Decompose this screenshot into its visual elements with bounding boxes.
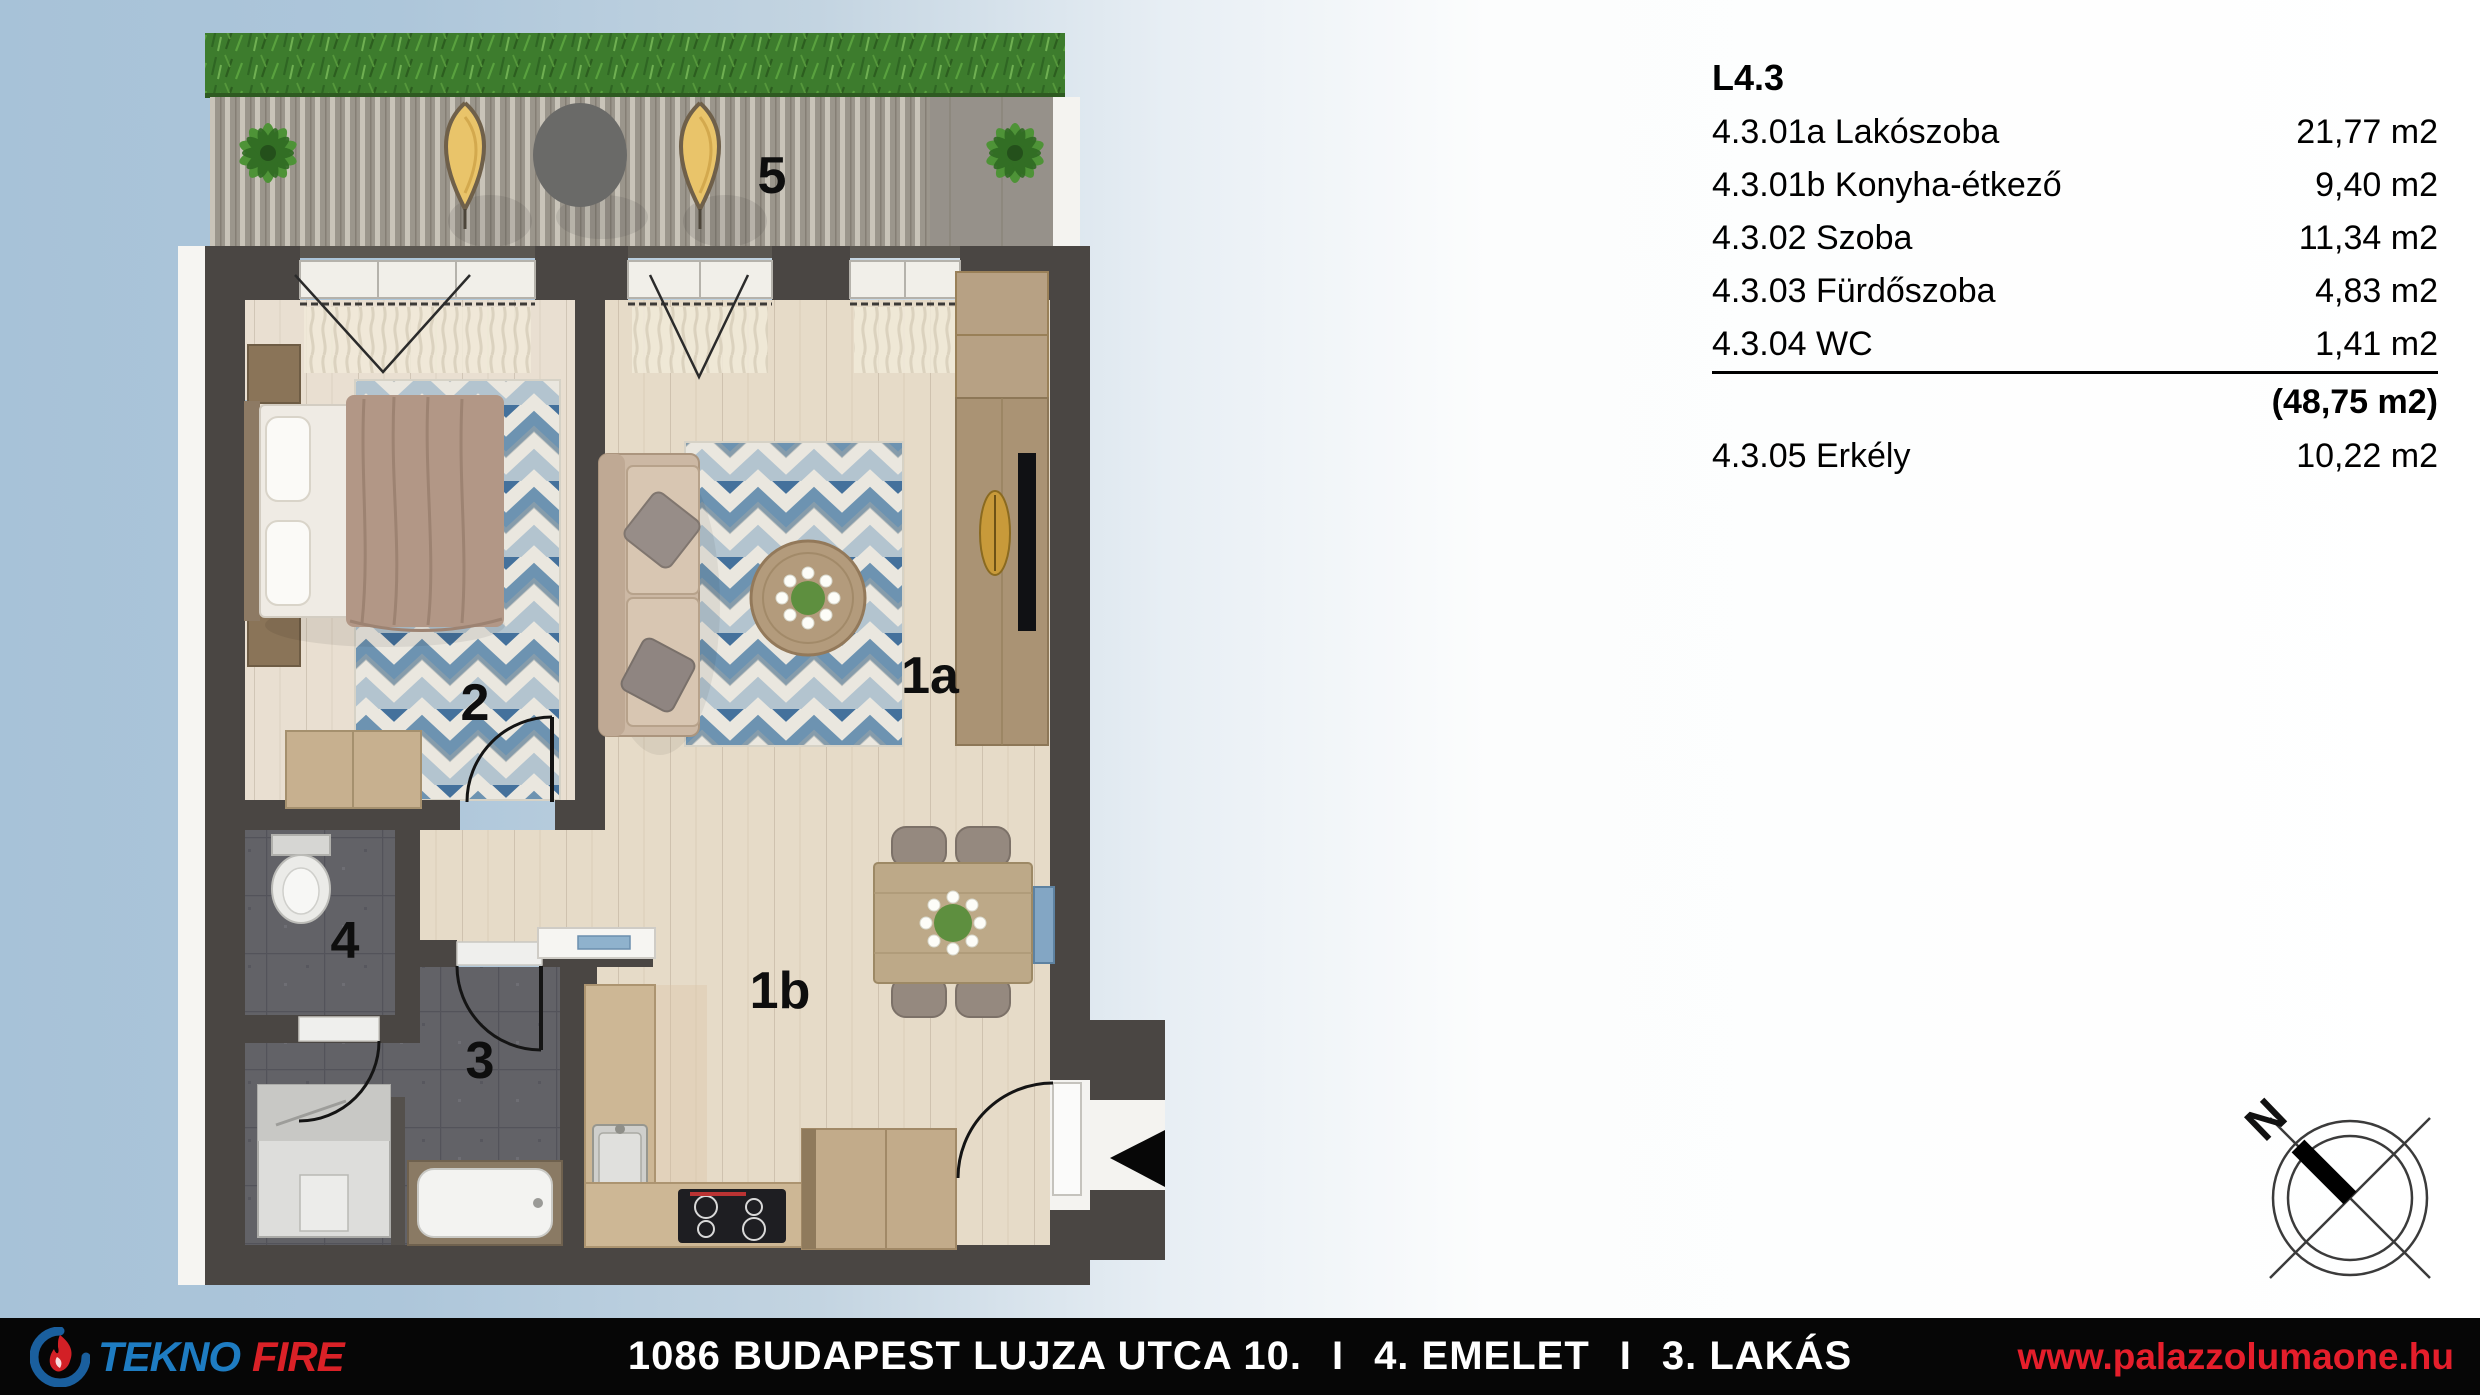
room-area: 21,77 m2 (2296, 113, 2438, 152)
hall-console (538, 928, 655, 958)
tekno-fire-logo: TEKNO FIRE (30, 1327, 344, 1387)
room-area: 11,34 m2 (2299, 219, 2438, 258)
wall-art (1034, 887, 1054, 963)
feather-art (980, 491, 1010, 575)
separator: I (1620, 1334, 1632, 1379)
compass: N (2240, 1078, 2480, 1318)
grass-strip (205, 33, 1065, 97)
bed (244, 395, 504, 631)
entry-door (1053, 1083, 1081, 1195)
area-legend: L4.3 4.3.01a Lakószoba 21,77 m2 4.3.01b … (1712, 50, 2438, 483)
toilet-tank (272, 835, 330, 855)
room-area: 4,83 m2 (2315, 272, 2438, 311)
balcony-area (205, 33, 1080, 247)
wc-door-sill (299, 1017, 379, 1041)
tv (1018, 453, 1036, 631)
bedroom-window (300, 261, 535, 373)
sofa (599, 454, 703, 736)
room-label-balcony: 5 (758, 147, 787, 205)
dining-chair (956, 827, 1010, 867)
separator: I (1332, 1334, 1344, 1379)
room-name: 4.3.01b Konyha-étkező (1712, 166, 2062, 205)
balcony-parapet (1053, 97, 1080, 247)
floor-number: 4. EMELET (1374, 1334, 1590, 1379)
room-label-kitchen: 1b (750, 962, 811, 1020)
legend-row: 4.3.04 WC 1,41 m2 (1712, 318, 2438, 374)
floor-plan: 5 2 1a 4 3 1b (150, 25, 1180, 1295)
washing-machine (258, 1085, 390, 1237)
legend-row-balcony: 4.3.05 Erkély 10,22 m2 (1712, 430, 2438, 483)
kitchen-island (802, 1129, 956, 1249)
stove (678, 1189, 786, 1243)
room-name: 4.3.02 Szoba (1712, 219, 1912, 258)
room-label-wc: 4 (331, 912, 360, 970)
dining-chair (892, 827, 946, 867)
bath-door-sill (457, 942, 542, 965)
room-label-bedroom: 2 (461, 674, 490, 732)
bathtub (408, 1161, 562, 1245)
flower-vase (776, 567, 840, 629)
brand-name-tekno: TEKNO (98, 1333, 240, 1381)
coffee-table (751, 541, 865, 655)
flame-icon (30, 1327, 90, 1387)
nightstand (248, 345, 300, 403)
balcony-table (533, 103, 627, 207)
total-area: (48,75 m2) (2272, 383, 2438, 422)
address: 1086 BUDAPEST LUJZA UTCA 10. (628, 1334, 1302, 1379)
room-area: 10,22 m2 (2296, 437, 2438, 476)
pillow (266, 521, 310, 605)
room-name: 4.3.01a Lakószoba (1712, 113, 1999, 152)
footer-bar: TEKNO FIRE 1086 BUDAPEST LUJZA UTCA 10. … (0, 1318, 2480, 1395)
compass-north-label: N (2240, 1089, 2297, 1151)
legend-row: 4.3.01a Lakószoba 21,77 m2 (1712, 106, 2438, 159)
room-label-bathroom: 3 (466, 1032, 495, 1090)
room-name: 4.3.05 Erkély (1712, 437, 1910, 476)
brand-name-fire: FIRE (252, 1333, 344, 1381)
pillow (266, 417, 310, 501)
legend-row: 4.3.01b Konyha-étkező 9,40 m2 (1712, 159, 2438, 212)
living-window (628, 261, 772, 373)
console-decor (578, 936, 630, 949)
room-area: 1,41 m2 (2315, 325, 2438, 364)
legend-title: L4.3 (1712, 50, 2438, 106)
room-label-living: 1a (901, 647, 960, 705)
legend-row: 4.3.03 Fürdőszoba 4,83 m2 (1712, 265, 2438, 318)
room-name: 4.3.04 WC (1712, 325, 1873, 364)
floor-plan-svg: 5 2 1a 4 3 1b (150, 25, 1180, 1295)
website-link[interactable]: www.palazzolumaone.hu (2017, 1336, 2454, 1378)
flower-centerpiece (920, 891, 986, 955)
room-area: 9,40 m2 (2315, 166, 2438, 205)
media-unit (956, 272, 1048, 745)
legend-total-row: (48,75 m2) (1712, 374, 2438, 430)
legend-row: 4.3.02 Szoba 11,34 m2 (1712, 212, 2438, 265)
living-window (850, 261, 960, 373)
room-name: 4.3.03 Fürdőszoba (1712, 272, 1996, 311)
compass-icon: N (2240, 1078, 2480, 1318)
apartment-number: 3. LAKÁS (1662, 1334, 1852, 1379)
blanket (346, 395, 504, 627)
